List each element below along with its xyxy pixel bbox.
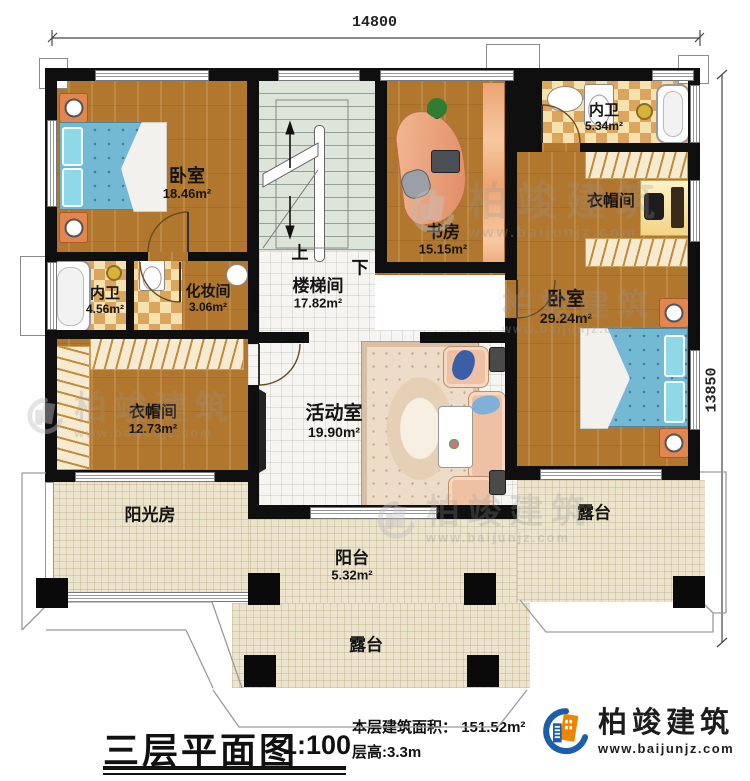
dimension-top-value: 14800	[352, 14, 397, 31]
room-label-bedroom-right: 卧室 29.24m²	[540, 290, 592, 326]
stair-up-label: 上	[292, 239, 309, 264]
pillar	[673, 576, 705, 608]
door-arc	[140, 105, 580, 385]
dimension-right-value: 13850	[704, 367, 721, 412]
room-label-stair-hall: 楼梯间 17.82m²	[293, 278, 344, 311]
pillar	[464, 573, 496, 605]
room-label-bedroom-left: 卧室 18.46m²	[163, 167, 211, 201]
room-label-bath-top: 内卫 5.34m²	[585, 103, 623, 133]
room-label-activity: 活动室 19.90m²	[305, 404, 362, 440]
room-label-sunroom: 阳光房	[125, 507, 176, 526]
room-label-study: 书房 15.15m²	[419, 224, 467, 257]
pillar	[244, 655, 276, 687]
plan-linework	[0, 0, 750, 781]
pillar	[36, 578, 68, 608]
room-label-terrace-right: 露台	[577, 505, 611, 524]
room-label-bath-left: 内卫 4.56m²	[86, 286, 124, 316]
floor-plan: 14800 13850 卧室 18.46m² 楼梯间 17.82m² 书房 15…	[0, 0, 750, 781]
room-label-closet-top: 衣帽间	[587, 193, 635, 211]
dimension-line	[48, 30, 727, 647]
pillar	[248, 573, 280, 605]
stair-direction-arrows	[286, 122, 294, 238]
stair-down-label: 下	[352, 254, 369, 279]
room-label-balcony: 阳台 5.32m²	[331, 550, 372, 583]
room-label-makeup: 化妆间 3.06m²	[185, 284, 230, 314]
pillar	[467, 655, 499, 687]
stair-break	[263, 100, 348, 248]
room-label-terrace-bottom: 露台	[349, 637, 383, 656]
room-label-closet-left: 衣帽间 12.73m²	[129, 404, 177, 436]
